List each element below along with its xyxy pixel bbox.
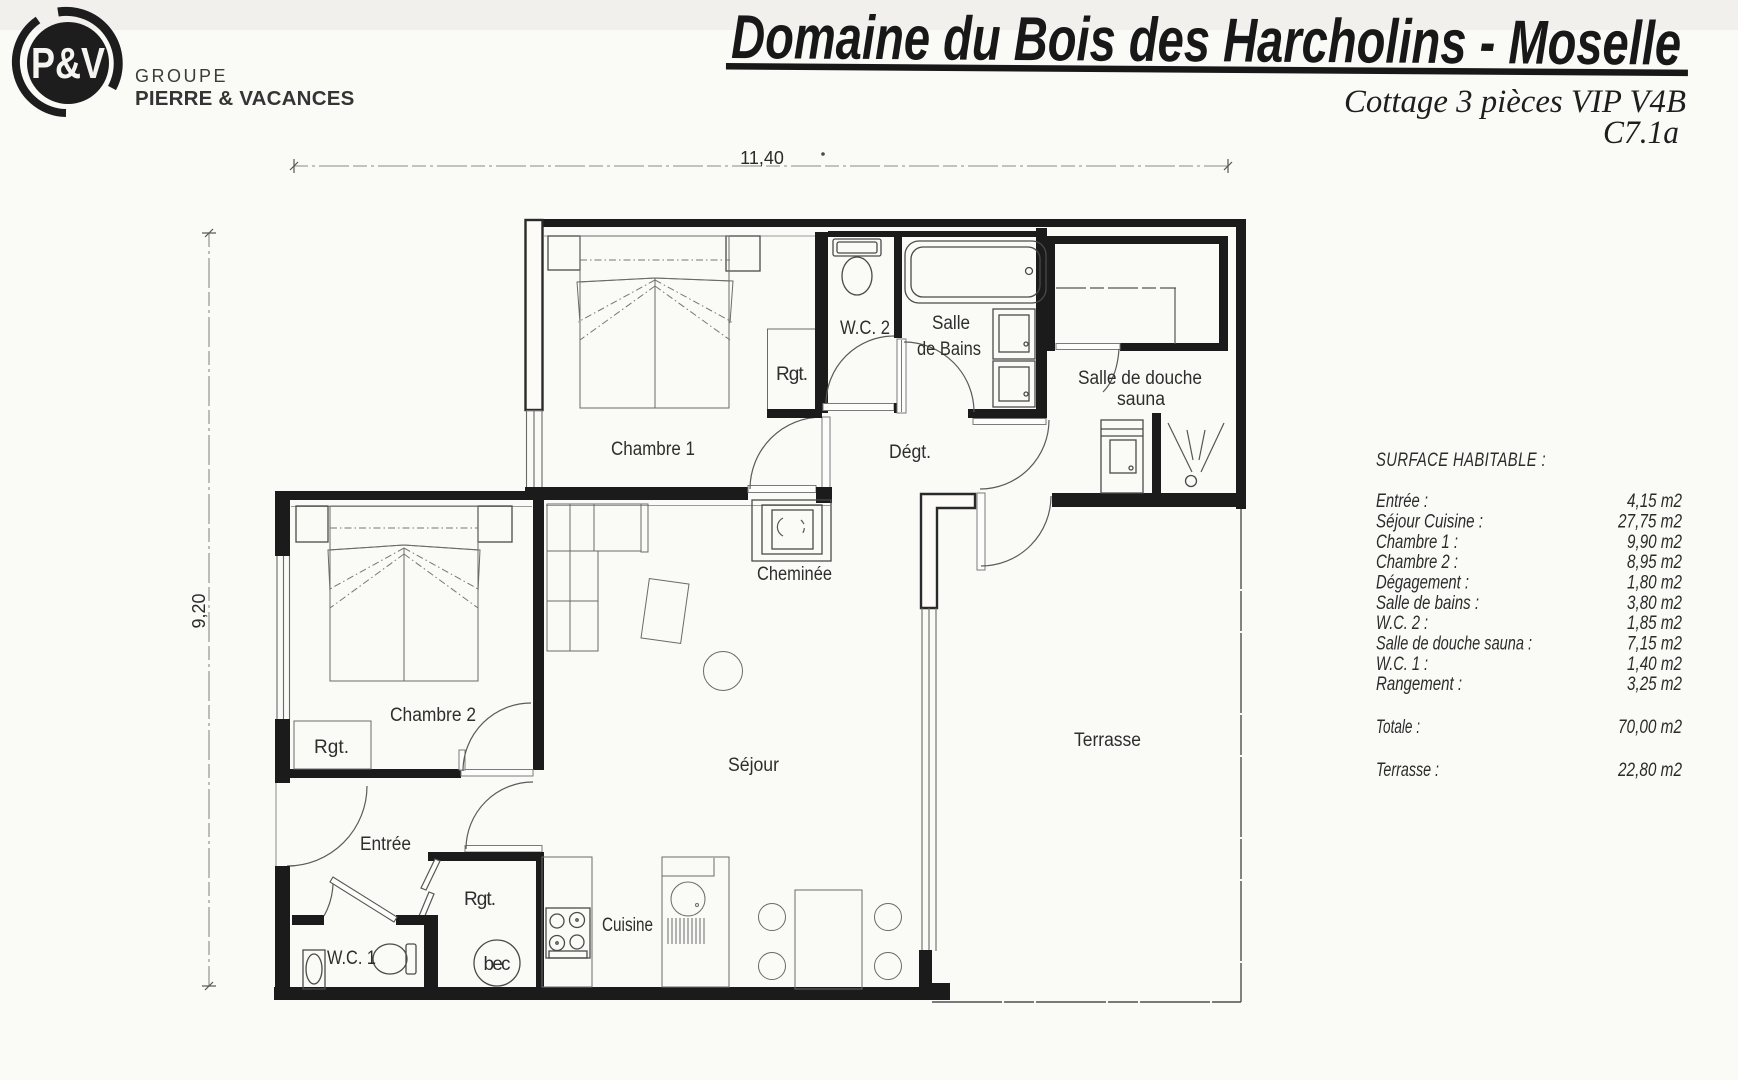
svg-text:Salle de bains :: Salle de bains : <box>1376 593 1479 614</box>
svg-text:W.C. 2 :: W.C. 2 : <box>1376 613 1428 634</box>
svg-text:9,90 m2: 9,90 m2 <box>1627 532 1682 553</box>
svg-text:PIERRE & VACANCES: PIERRE & VACANCES <box>135 87 354 110</box>
svg-text:Chambre 1: Chambre 1 <box>611 439 695 460</box>
svg-text:22,80 m2: 22,80 m2 <box>1617 760 1682 781</box>
svg-text:1,85 m2: 1,85 m2 <box>1627 613 1682 634</box>
svg-text:1,80 m2: 1,80 m2 <box>1627 573 1682 594</box>
svg-text:Chambre 2 :: Chambre 2 : <box>1376 552 1458 573</box>
svg-text:Entrée: Entrée <box>360 834 411 855</box>
svg-text:Salle: Salle <box>932 313 970 334</box>
svg-text:SURFACE HABITABLE :: SURFACE HABITABLE : <box>1376 450 1546 471</box>
svg-text:Rgt.: Rgt. <box>464 889 496 910</box>
svg-text:Terrasse: Terrasse <box>1074 730 1141 751</box>
svg-text:de Bains: de Bains <box>917 339 981 360</box>
svg-text:Salle de douche sauna :: Salle de douche sauna : <box>1376 634 1532 655</box>
svg-text:Entrée :: Entrée : <box>1376 491 1428 512</box>
svg-text:Rgt.: Rgt. <box>776 364 808 385</box>
svg-text:Dégt.: Dégt. <box>889 442 931 463</box>
svg-text:P&V: P&V <box>31 39 106 88</box>
svg-text:bec: bec <box>484 954 511 975</box>
svg-text:11,40: 11,40 <box>740 148 784 168</box>
svg-text:4,15 m2: 4,15 m2 <box>1627 491 1682 512</box>
svg-text:C7.1a: C7.1a <box>1603 115 1679 151</box>
svg-text:8,95 m2: 8,95 m2 <box>1627 552 1682 573</box>
svg-text:9,20: 9,20 <box>189 593 209 628</box>
svg-text:Totale :: Totale : <box>1376 717 1420 738</box>
svg-text:Cheminée: Cheminée <box>757 564 832 585</box>
svg-text:W.C. 2: W.C. 2 <box>840 318 890 339</box>
svg-text:Chambre 1 :: Chambre 1 : <box>1376 532 1458 553</box>
svg-text:70,00 m2: 70,00 m2 <box>1618 717 1682 738</box>
svg-text:Terrasse :: Terrasse : <box>1376 760 1439 781</box>
svg-text:sauna: sauna <box>1117 389 1165 410</box>
svg-text:Rgt.: Rgt. <box>314 737 349 758</box>
svg-text:Rangement :: Rangement : <box>1376 674 1462 695</box>
svg-text:Cuisine: Cuisine <box>602 915 653 936</box>
svg-text:Chambre 2: Chambre 2 <box>390 705 476 726</box>
svg-text:Salle de douche: Salle de douche <box>1078 368 1202 389</box>
svg-text:Séjour Cuisine :: Séjour Cuisine : <box>1376 512 1483 533</box>
svg-text:W.C. 1 :: W.C. 1 : <box>1376 654 1428 675</box>
svg-text:Dégagement :: Dégagement : <box>1376 573 1469 594</box>
svg-text:Séjour: Séjour <box>728 755 780 776</box>
svg-text:GROUPE: GROUPE <box>135 66 228 86</box>
svg-text:7,15 m2: 7,15 m2 <box>1627 634 1682 655</box>
svg-text:3,80 m2: 3,80 m2 <box>1627 593 1682 614</box>
svg-text:3,25 m2: 3,25 m2 <box>1627 674 1682 695</box>
svg-text:1,40 m2: 1,40 m2 <box>1627 654 1682 675</box>
svg-text:27,75 m2: 27,75 m2 <box>1617 512 1682 533</box>
svg-text:W.C. 1: W.C. 1 <box>327 948 376 969</box>
